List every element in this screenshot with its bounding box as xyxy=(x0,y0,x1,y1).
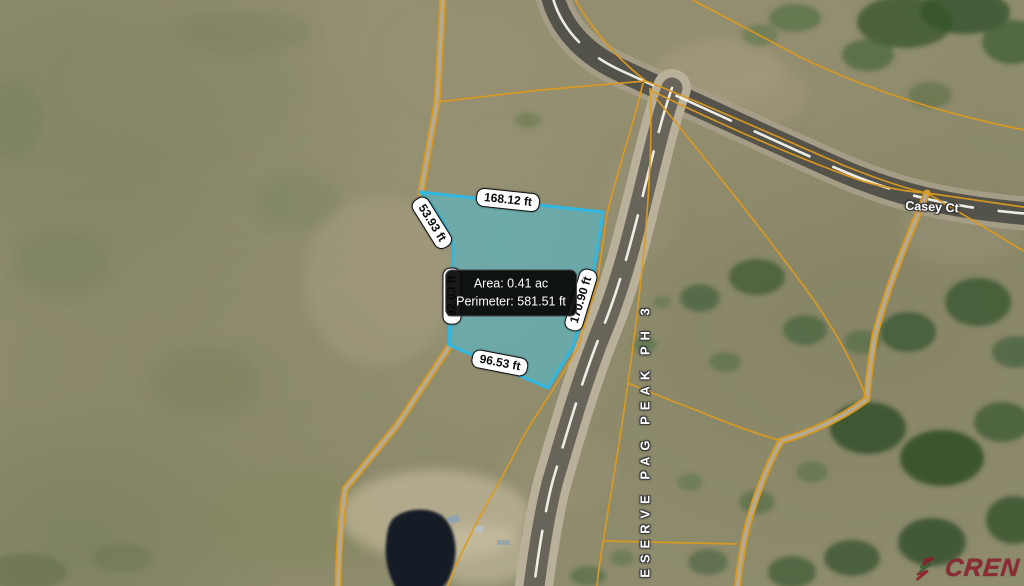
trail-southeast xyxy=(737,193,927,586)
satellite-map-canvas[interactable]: 168.12 ft 53.93 ft 92.03 ft 96.53 ft 170… xyxy=(0,0,1024,586)
boundary-line xyxy=(603,541,737,544)
pond xyxy=(386,510,456,586)
road-label-casey-ct: Casey Ct xyxy=(905,199,959,216)
parcel-area-text: Area: 0.41 ac xyxy=(456,276,566,294)
parcel-info-tooltip: Area: 0.41 ac Perimeter: 581.51 ft xyxy=(445,270,577,317)
trail-southeast-track xyxy=(737,193,927,586)
equipment xyxy=(497,540,510,545)
parcel-perimeter-text: Perimeter: 581.51 ft xyxy=(456,293,566,311)
construction-area xyxy=(340,470,535,586)
road-label-reserve-pag-peak: ESERVE PAG PEAK PH 3 xyxy=(638,280,653,586)
